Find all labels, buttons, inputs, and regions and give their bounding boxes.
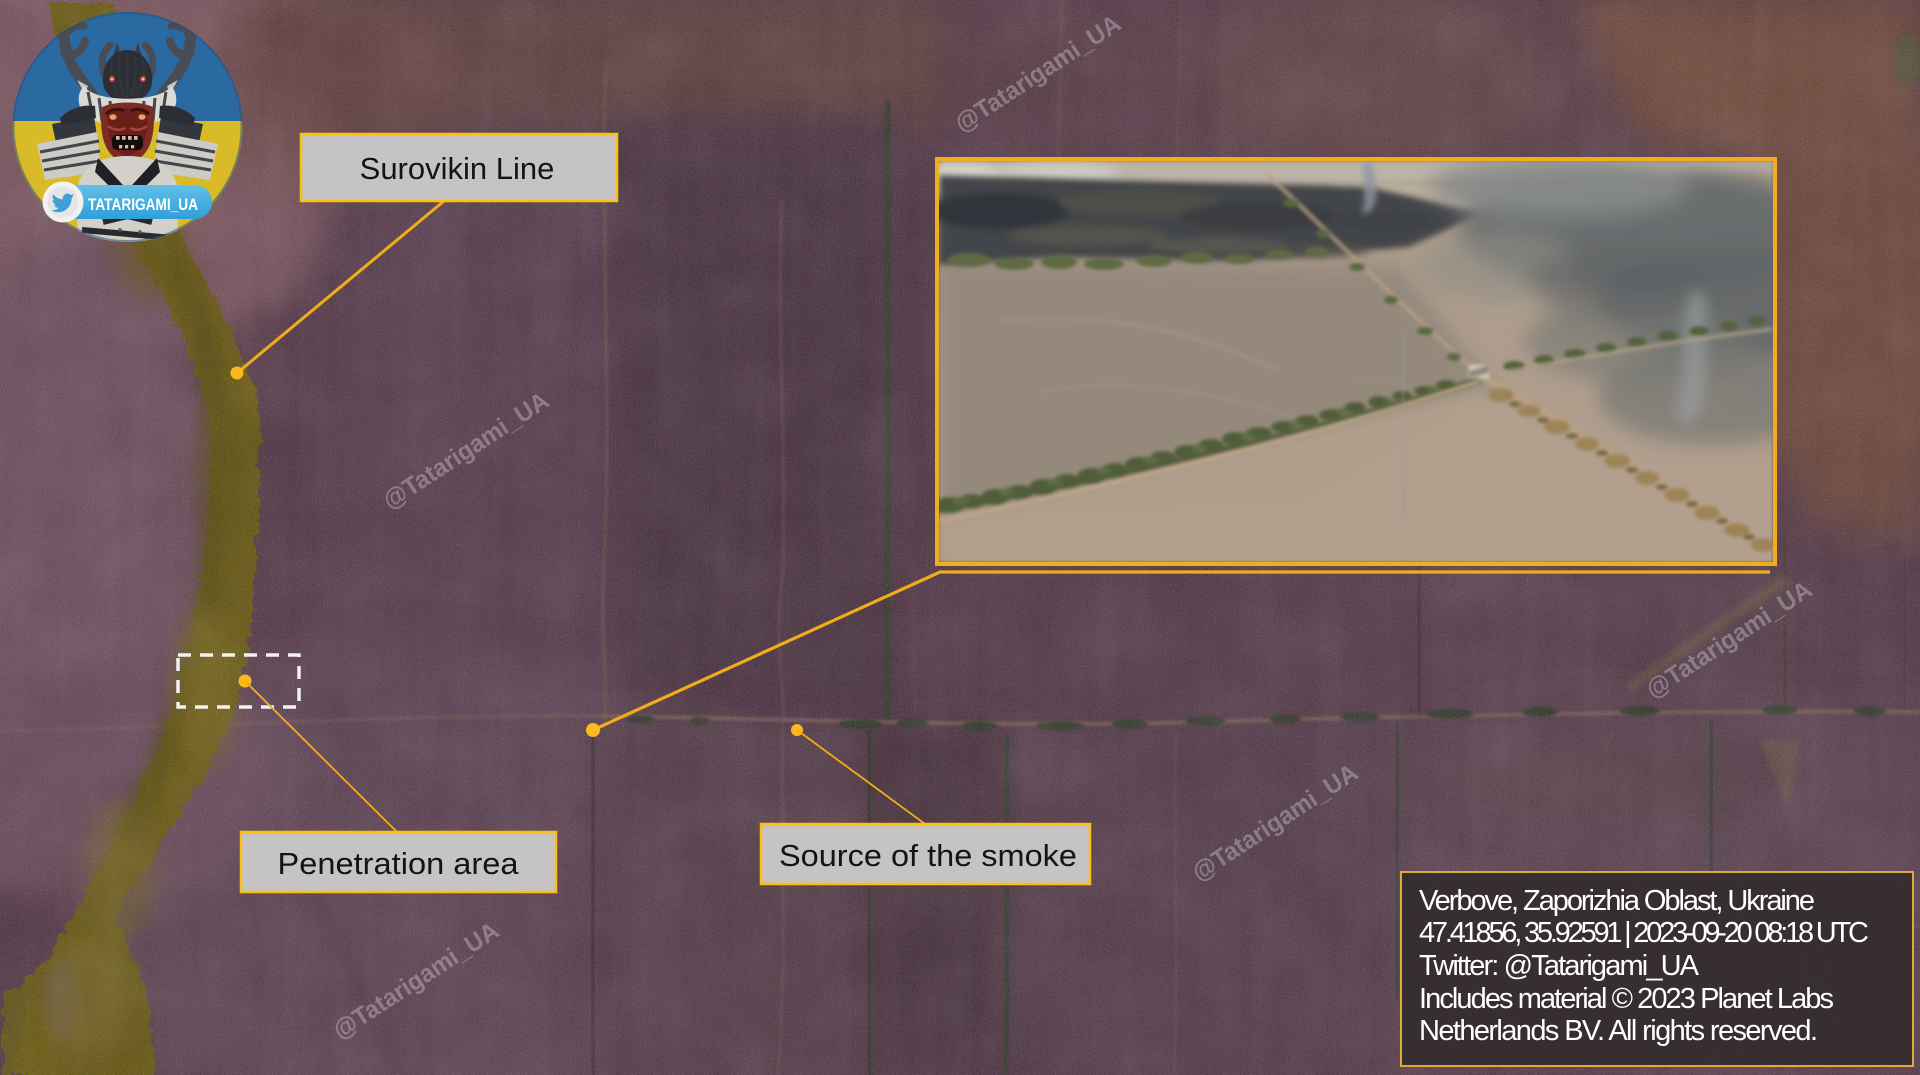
svg-text:47.41856, 35.92591 | 2023-09-2: 47.41856, 35.92591 | 2023-09-20 08:18 UT…: [1419, 917, 1869, 949]
svg-text:Twitter: @Tatarigami_UA: Twitter: @Tatarigami_UA: [1419, 950, 1700, 982]
svg-text:Penetration area: Penetration area: [278, 846, 520, 881]
svg-text:Verbove, Zaporizhia Oblast, Uk: Verbove, Zaporizhia Oblast, Ukraine: [1419, 885, 1815, 917]
svg-text:TATARIGAMI_UA: TATARIGAMI_UA: [88, 195, 198, 214]
svg-text:Netherlands BV. All rights res: Netherlands BV. All rights reserved.: [1419, 1015, 1818, 1047]
svg-text:Includes material © 2023 Plane: Includes material © 2023 Planet Labs: [1419, 983, 1834, 1015]
svg-text:Source of the smoke: Source of the smoke: [779, 838, 1077, 873]
svg-text:Surovikin Line: Surovikin Line: [360, 151, 555, 186]
